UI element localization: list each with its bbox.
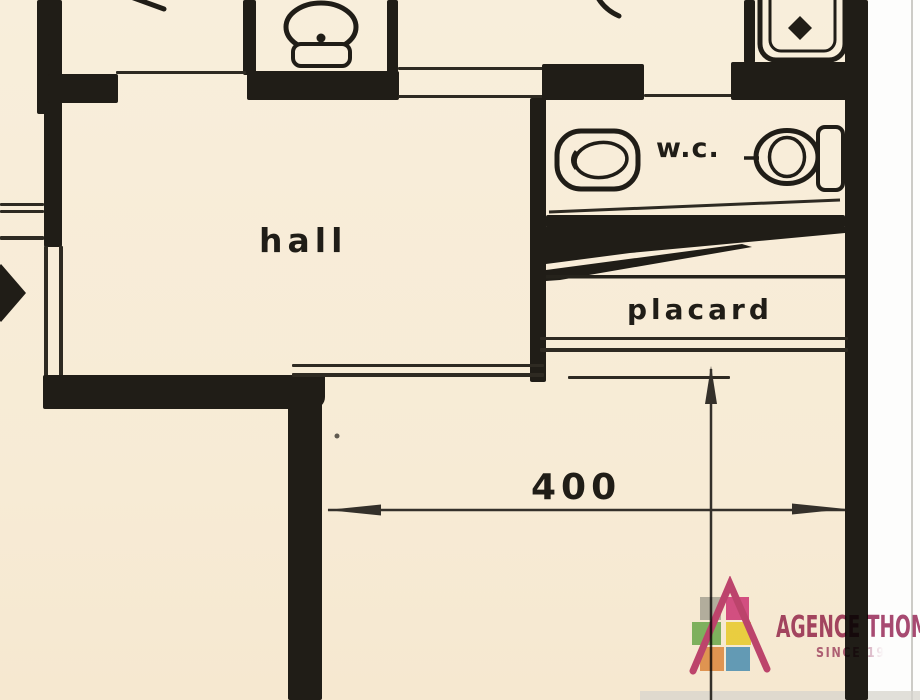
door-swing-tip — [596, 0, 619, 16]
scan-speckle — [335, 434, 340, 439]
direction-diamond-icon — [0, 264, 26, 322]
logo-square-blue — [726, 647, 750, 671]
arrowhead-right-icon — [792, 504, 846, 515]
room-label-placard: placard — [627, 296, 773, 324]
wc-toilet-fixture — [744, 127, 843, 190]
house-logo-icon — [688, 576, 773, 676]
logo-brand-text: AGENCE THOMAS — [776, 610, 920, 645]
toilet-fixture — [286, 3, 356, 66]
floor-plan-scan: hall w.c. placard 400 AGENCE THOMAS SINC… — [0, 0, 920, 700]
logo-tagline-text: SINCE 19 — [816, 646, 886, 661]
arrowhead-left-icon — [327, 505, 381, 516]
room-label-hall: hall — [259, 224, 347, 257]
door-swing-tip — [131, 0, 164, 9]
agency-logo: AGENCE THOMAS SINCE 19 — [688, 576, 920, 680]
hatched-band — [546, 227, 845, 281]
bidet-fixture — [557, 131, 638, 189]
shower-tray-fixture — [760, 0, 845, 60]
arrowhead-up-icon — [705, 366, 717, 404]
drain-diamond-icon — [788, 16, 812, 40]
dimension-value: 400 — [531, 470, 621, 506]
wall-line — [549, 200, 840, 212]
room-label-wc: w.c. — [656, 135, 720, 162]
cistern — [818, 127, 843, 190]
